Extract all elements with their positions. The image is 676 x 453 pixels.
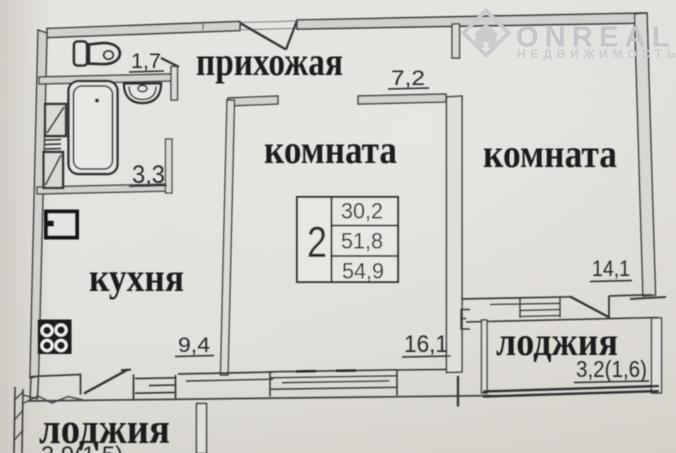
svg-text:7,2: 7,2 <box>391 67 425 90</box>
svg-text:51,8: 51,8 <box>341 229 383 254</box>
svg-text:9,4: 9,4 <box>178 334 210 357</box>
svg-text:54,9: 54,9 <box>342 259 384 284</box>
svg-text:16,1: 16,1 <box>404 331 448 358</box>
svg-text:3,9(1,5): 3,9(1,5) <box>41 442 123 453</box>
svg-text:комната: комната <box>483 131 617 176</box>
svg-text:комната: комната <box>264 127 397 172</box>
svg-text:14,1: 14,1 <box>592 256 630 281</box>
svg-text:1,7: 1,7 <box>131 50 161 73</box>
svg-text:3,2(1,6): 3,2(1,6) <box>576 356 647 382</box>
svg-text:3,3: 3,3 <box>132 161 165 189</box>
svg-text:2: 2 <box>307 218 327 267</box>
svg-text:НЕДВИЖИМОСТЬ: НЕДВИЖИМОСТЬ <box>517 47 676 61</box>
svg-text:прихожая: прихожая <box>196 39 343 84</box>
svg-text:30,2: 30,2 <box>341 199 383 224</box>
svg-text:кухня: кухня <box>89 255 184 300</box>
